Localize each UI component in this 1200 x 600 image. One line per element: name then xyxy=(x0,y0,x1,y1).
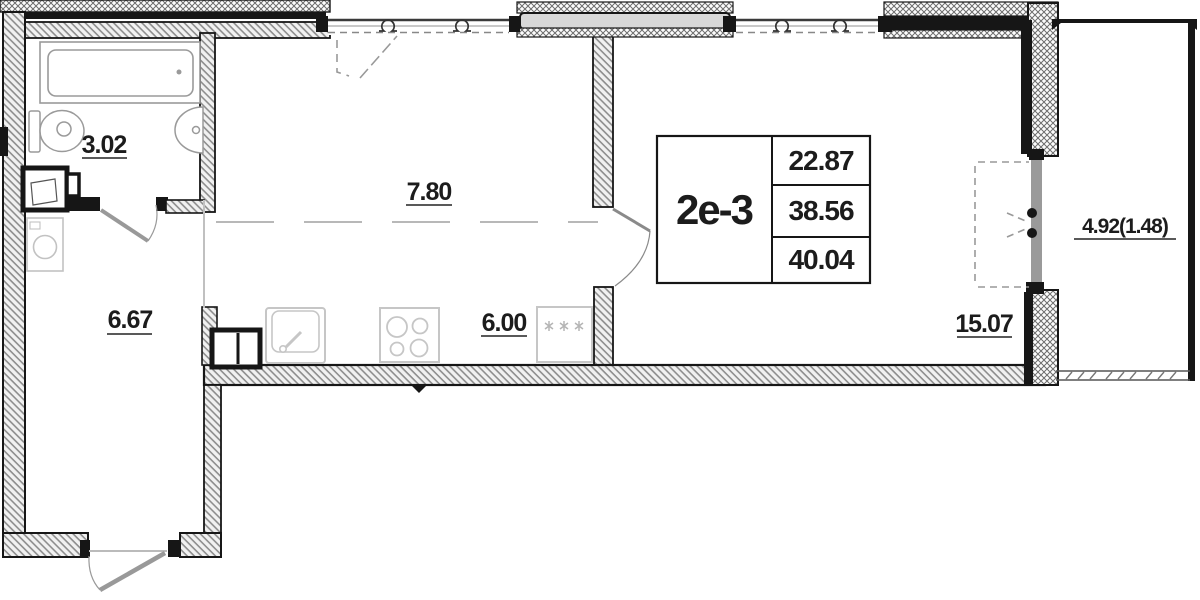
door-swing-arc xyxy=(89,556,100,590)
area-label-kitchen: 6.00 xyxy=(482,309,527,337)
kitchen-sink-icon xyxy=(266,308,325,363)
doors xyxy=(89,205,650,590)
area-label-corridor: 7.80 xyxy=(407,178,452,206)
wall-pier xyxy=(517,2,733,13)
wall xyxy=(4,22,330,38)
wall-pier xyxy=(520,13,730,29)
wall xyxy=(204,365,1045,385)
balcony-railing xyxy=(1056,371,1190,380)
balcony-glass-wall xyxy=(1031,156,1042,292)
vent-shaft-box xyxy=(212,330,260,367)
area-label-balcony: 4.92(1.48) xyxy=(1082,215,1168,238)
door-leaf xyxy=(100,553,165,590)
wall xyxy=(2,12,326,19)
area-label-hallway: 6.67 xyxy=(108,306,153,334)
balcony-door-jamb xyxy=(1026,282,1044,294)
fridge-icon xyxy=(537,307,592,362)
wall xyxy=(3,533,88,557)
balcony-door-hinge xyxy=(1027,208,1037,218)
door-leaf xyxy=(613,209,650,231)
wall-notch xyxy=(410,384,428,393)
stamp-area-total-reduced: 40.04 xyxy=(788,244,854,275)
stove-icon xyxy=(380,308,439,362)
wall xyxy=(68,197,100,211)
area-label-bathroom: 3.02 xyxy=(82,131,127,159)
stamp-area-living: 22.87 xyxy=(788,145,853,176)
wall xyxy=(594,287,613,367)
wall-pier xyxy=(517,28,733,37)
door-swing-arc xyxy=(615,231,650,286)
balcony-door-hinge xyxy=(1027,228,1037,238)
balcony-right-edge xyxy=(1188,20,1195,381)
wall xyxy=(166,200,204,213)
wall-stub xyxy=(0,127,8,156)
vent-shaft-box xyxy=(23,168,67,210)
living-room-door xyxy=(613,209,650,286)
stamp-unit-label: 2e-3 xyxy=(676,186,753,233)
window-jamb xyxy=(878,16,892,32)
wall xyxy=(0,0,330,12)
wall xyxy=(593,33,613,207)
washing-machine-icon xyxy=(27,218,63,271)
wall xyxy=(180,533,221,557)
door-leaf xyxy=(101,210,148,241)
door-swing-arc xyxy=(148,205,157,241)
wall xyxy=(1024,292,1033,385)
floor-plan-page: 3.02 7.80 6.67 6.00 15.07 4.92(1.48) 2e-… xyxy=(0,0,1200,600)
window-kitchen xyxy=(328,14,509,35)
door-jamb xyxy=(168,540,180,557)
balcony-top-edge xyxy=(1052,19,1197,23)
window-living xyxy=(736,14,878,35)
door-jamb xyxy=(80,540,90,557)
window-jamb xyxy=(316,16,330,32)
window-jamb xyxy=(723,16,736,32)
entrance-door xyxy=(89,551,167,590)
bathtub-icon xyxy=(40,42,200,103)
stamp-area-total: 38.56 xyxy=(788,195,853,226)
area-label-living: 15.07 xyxy=(955,310,1013,338)
balcony-door-jamb xyxy=(1029,149,1044,160)
toilet-icon xyxy=(29,111,84,153)
annotations xyxy=(204,36,598,308)
bathroom-sink-icon xyxy=(175,107,203,153)
wall xyxy=(1021,20,1032,154)
balcony-door-swing xyxy=(975,162,1029,287)
wall xyxy=(3,12,25,557)
bathroom-door xyxy=(101,205,157,241)
vent-shaft-box xyxy=(67,174,79,196)
niche-dashed-mark xyxy=(337,36,397,78)
unit-stamp: 2e-3 22.87 38.56 40.04 xyxy=(657,136,870,283)
wall xyxy=(204,385,221,557)
floor-plan-drawing: 3.02 7.80 6.67 6.00 15.07 4.92(1.48) 2e-… xyxy=(0,0,1200,600)
